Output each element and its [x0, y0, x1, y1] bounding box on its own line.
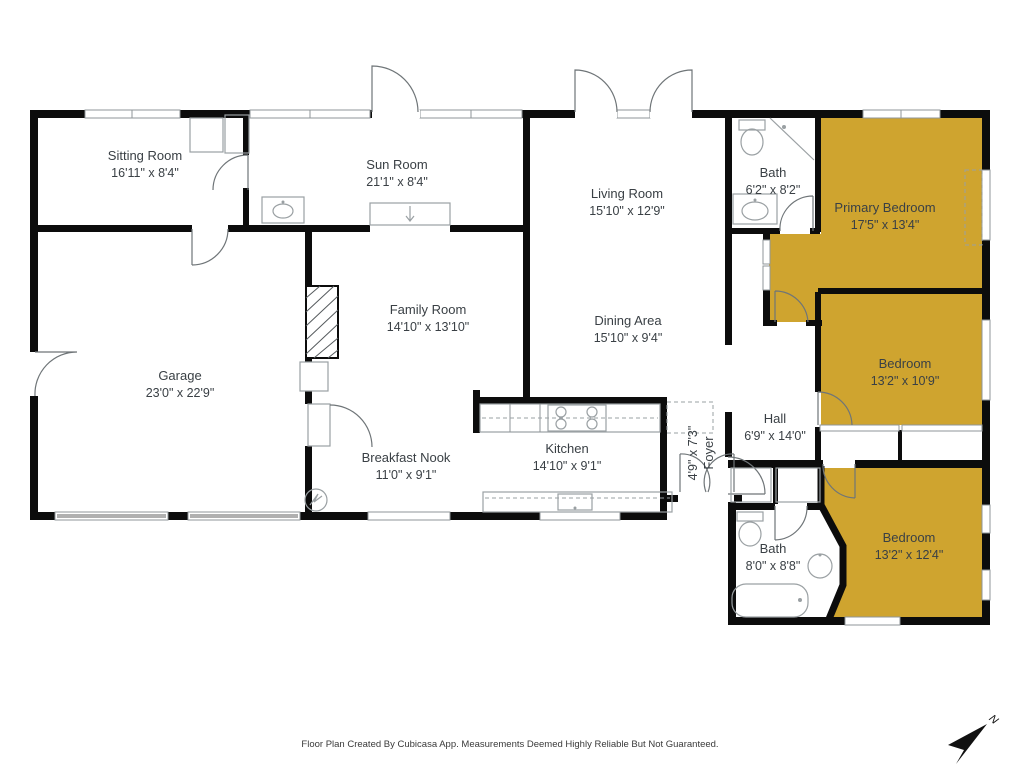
closet-lower-right [776, 468, 820, 502]
room-label-family-room: Family Room 14'10" x 13'10" [387, 302, 469, 334]
kitchen-counter-top [480, 402, 713, 433]
svg-text:Bath: Bath [760, 541, 787, 556]
room-label-sun-room: Sun Room 21'1" x 8'4" [366, 157, 428, 189]
garage-door-right [190, 514, 298, 518]
fireplace [370, 203, 450, 225]
svg-text:Sun Room: Sun Room [366, 157, 427, 172]
svg-text:Dining Area: Dining Area [594, 313, 662, 328]
chimney-hatch [306, 286, 338, 358]
svg-text:Bath: Bath [760, 165, 787, 180]
svg-text:6'9" x 14'0": 6'9" x 14'0" [744, 429, 806, 443]
garage-door-left [57, 514, 166, 518]
svg-text:14'10" x 9'1": 14'10" x 9'1" [533, 459, 602, 473]
footer-disclaimer: Floor Plan Created By Cubicasa App. Meas… [301, 739, 718, 750]
svg-text:Bedroom: Bedroom [883, 530, 936, 545]
svg-text:13'2" x 12'4": 13'2" x 12'4" [875, 548, 944, 562]
room-label-kitchen: Kitchen 14'10" x 9'1" [533, 441, 602, 473]
svg-text:21'1" x 8'4": 21'1" x 8'4" [366, 175, 428, 189]
svg-text:6'2" x 8'2": 6'2" x 8'2" [746, 183, 801, 197]
svg-text:23'0" x 22'9": 23'0" x 22'9" [146, 386, 215, 400]
svg-text:Breakfast Nook: Breakfast Nook [362, 450, 451, 465]
svg-text:Kitchen: Kitchen [545, 441, 588, 456]
closet-sitting-left [190, 118, 223, 152]
kitchen-counter-bottom [483, 492, 672, 512]
svg-text:Foyer: Foyer [701, 436, 716, 470]
svg-text:16'11" x 8'4": 16'11" x 8'4" [111, 166, 179, 180]
floor-plan-svg: Sitting Room 16'11" x 8'4" Sun Room 21'1… [0, 0, 1024, 768]
svg-text:15'10" x 12'9": 15'10" x 12'9" [589, 204, 665, 218]
svg-text:Family Room: Family Room [390, 302, 467, 317]
room-label-garage: Garage 23'0" x 22'9" [146, 368, 215, 400]
svg-text:15'10" x 9'4": 15'10" x 9'4" [594, 331, 663, 345]
room-label-sitting-room: Sitting Room 16'11" x 8'4" [108, 148, 182, 180]
room-label-bath-upper: Bath 6'2" x 8'2" [746, 165, 801, 197]
floor-plan-page: Sitting Room 16'11" x 8'4" Sun Room 21'1… [0, 0, 1024, 768]
svg-text:17'5" x 13'4": 17'5" x 13'4" [851, 218, 920, 232]
svg-text:Primary Bedroom: Primary Bedroom [834, 200, 935, 215]
room-label-dining-area: Dining Area 15'10" x 9'4" [594, 313, 663, 345]
room-label-foyer: Foyer 4'9" x 7'3" [686, 426, 716, 481]
svg-text:11'0" x 9'1": 11'0" x 9'1" [376, 468, 437, 482]
room-label-breakfast-nook: Breakfast Nook 11'0" x 9'1" [362, 450, 451, 482]
svg-text:14'10" x 13'10": 14'10" x 13'10" [387, 320, 469, 334]
highlighted-room-areas [769, 118, 982, 617]
svg-text:8'0" x 8'8": 8'0" x 8'8" [746, 559, 801, 573]
svg-text:13'2" x 10'9": 13'2" x 10'9" [871, 374, 940, 388]
north-label: N [986, 713, 1000, 727]
water-heater [300, 362, 328, 391]
room-label-hall: Hall 6'9" x 14'0" [744, 411, 806, 443]
north-arrow: N [948, 713, 1000, 764]
svg-text:Hall: Hall [764, 411, 787, 426]
svg-text:Garage: Garage [158, 368, 201, 383]
room-label-living-room: Living Room 15'10" x 12'9" [589, 186, 665, 218]
svg-text:Living Room: Living Room [591, 186, 663, 201]
svg-text:Bedroom: Bedroom [879, 356, 932, 371]
svg-text:Sitting Room: Sitting Room [108, 148, 182, 163]
wet-bar-sink [262, 197, 304, 223]
svg-text:4'9" x 7'3": 4'9" x 7'3" [686, 426, 700, 481]
